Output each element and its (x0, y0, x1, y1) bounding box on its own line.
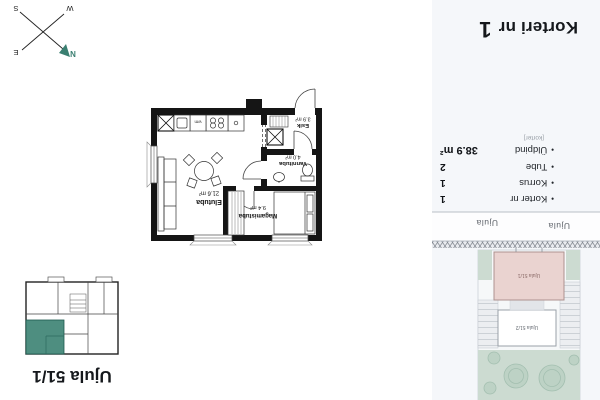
compass-n: N (70, 49, 76, 58)
info-label: Korter nr (510, 193, 547, 204)
info-value: 38.9 m² (440, 144, 478, 156)
site-plan: Ujula 51/2 Ujula 51/1 Ujula Ujula (432, 210, 600, 400)
stove (206, 115, 228, 131)
bullet-icon: • (551, 145, 554, 154)
street-label: Ujula (476, 218, 498, 228)
plan-sheet: Ujula 51/2 Ujula 51/1 Ujula Ujula • Kort… (0, 0, 600, 400)
dining-table (195, 162, 214, 181)
room-label-elutuba: Elutuba (196, 198, 222, 205)
info-value: 2 (440, 161, 446, 172)
compass-s: S (13, 4, 18, 13)
bullet-icon: • (551, 178, 554, 187)
toilet (301, 176, 314, 181)
room-label-esik: Esik (296, 122, 309, 128)
greenery-strip-right (478, 250, 492, 280)
fence-hatch (432, 241, 600, 248)
street (432, 212, 600, 241)
room-area-magamistuba: 9.4 m² (250, 204, 266, 210)
info-row-korrus: • Korrus 1 (440, 177, 554, 188)
room-label-magamistuba: Magamistuba (238, 212, 277, 218)
apartment-info-list: • Korter nr 1 • Korrus 1 • Tube 2 • Üldp… (440, 134, 554, 204)
kitchen-units (174, 115, 244, 131)
info-label: Üldpind (515, 144, 547, 155)
kitchen-sink (174, 115, 190, 131)
title-number: 1 (479, 16, 491, 42)
compass-icon: N E W S (8, 4, 78, 62)
building-main-label: Ujula 51/1 (518, 272, 541, 278)
bullet-icon: • (551, 162, 554, 171)
room-area-vannituba: 4.0 m² (285, 154, 300, 160)
greenery-strip-left (566, 250, 580, 280)
info-row-uldpind: • Üldpind 38.9 m² (440, 144, 554, 156)
info-label: Tube (526, 161, 547, 172)
street-label: Ujula (548, 221, 570, 231)
overview-stairs (70, 294, 86, 312)
sink (274, 173, 285, 182)
highlighted-unit (26, 320, 64, 354)
info-panel: Ujula 51/2 Ujula 51/1 Ujula Ujula • Kort… (432, 0, 600, 400)
bullet-icon: • (551, 194, 554, 203)
walkway (510, 300, 544, 310)
info-row-korter-nr: • Korter nr 1 (440, 193, 554, 204)
room-area-elutuba: 21.6 m² (199, 190, 219, 196)
floor-plan: wm Elutuba 21.6 m² Magamistuba 9.4 m² Va… (144, 86, 324, 252)
info-sublabel: [korter] (440, 134, 544, 141)
overview-title: Ujula 51/1 (12, 366, 132, 386)
info-row-tube: • Tube 2 (440, 161, 554, 172)
title-prefix: Korteri nr (499, 17, 578, 37)
sofa (158, 157, 164, 231)
page-title: Korteri nr 1 (479, 16, 578, 42)
info-value: 1 (440, 177, 446, 188)
room-area-esik: 3.9 m² (295, 116, 310, 122)
compass-north-arrow (59, 44, 70, 57)
building-overview (24, 274, 120, 356)
compass-e: E (13, 48, 18, 57)
room-label-vannituba: Vannituba (278, 160, 306, 166)
info-label: Korrus (519, 177, 547, 188)
info-value: 1 (440, 193, 446, 204)
washer-label: wm (194, 120, 201, 125)
bed (274, 192, 315, 234)
overview-balconies (48, 277, 112, 282)
building-secondary-label: Ujula 51/2 (516, 324, 539, 330)
compass-w: W (66, 4, 74, 13)
